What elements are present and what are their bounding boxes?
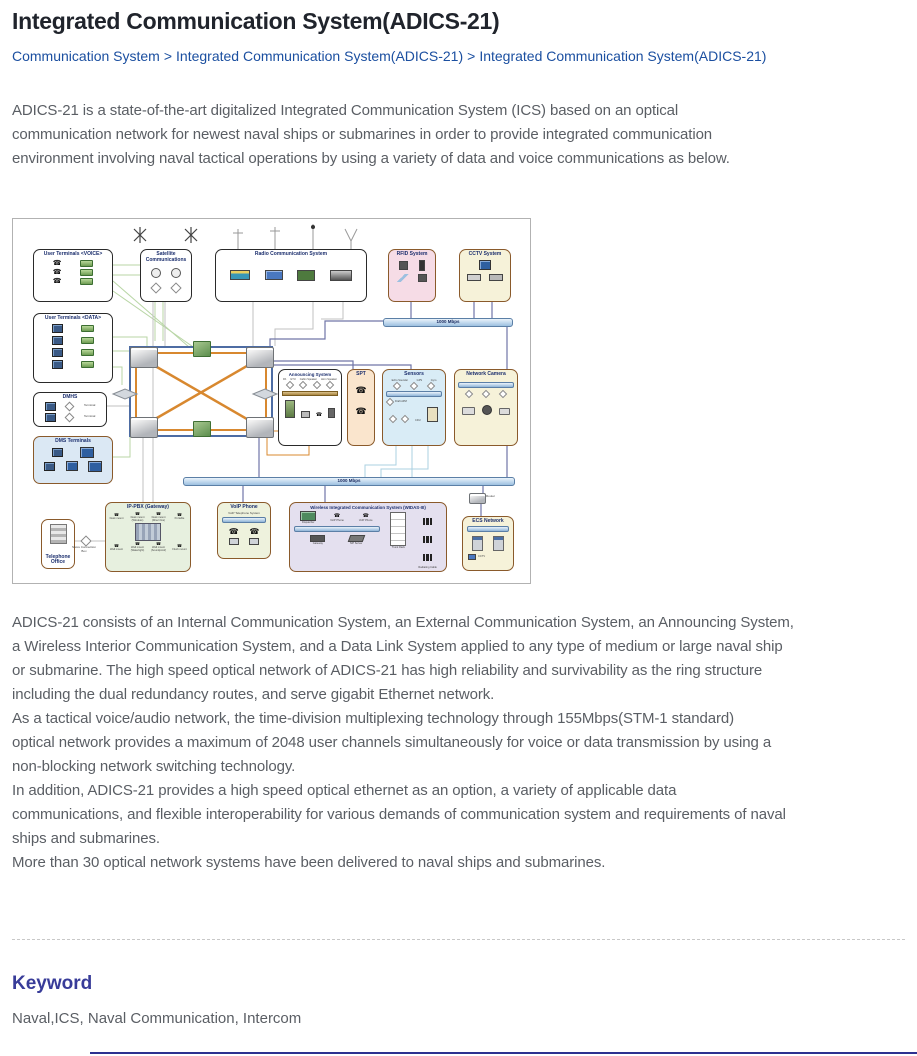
widas-bus-icon [294,526,380,532]
sensor-node-icon [388,415,396,423]
display-icon [80,447,94,458]
phone-icon: ☎ [53,260,62,267]
widas-item: ☎VoIP Phone [355,514,376,522]
walkie-talkie-group-icon [422,548,433,566]
ecs-console-icon [493,536,504,551]
body-line: ships and submarines. [12,827,905,851]
phone-base-icon [249,538,259,545]
widas-item-label: Gateway [313,542,323,545]
dispatcher-icon [300,511,316,521]
breadcrumb: Communication System>Integrated Communic… [12,48,905,64]
breadcrumb-separator: > [164,48,172,64]
bottom-section-rule [90,1052,917,1054]
body-line: a Wireless Interior Communication System… [12,635,905,659]
widas-item: Gateway [307,535,328,545]
box-ecs-network: ECS Network CCTV [462,516,514,571]
optical-switch-icon [246,347,274,368]
breadcrumb-item-1[interactable]: Communication System [12,48,160,64]
box-radio-communication: Radio Communication System [215,249,367,302]
voip-bus-icon [222,517,266,523]
sensor-label: Echo Sounder [392,379,408,382]
box-user-terminals-voice: User Terminals <VOICE> ☎ ☎ ☎ [33,249,113,302]
widas-item-label: VoIP Phone [359,519,373,522]
amplifier-icon [301,411,310,418]
gigabit-bus-top: 1000 Mbps [383,318,513,327]
optical-switch-icon [130,347,158,368]
pbx-phone-label: Wall mount (Watertight) [127,546,148,552]
computer-icon [52,360,63,369]
announcing-item-label: PA [283,378,286,381]
pbx-phone-label: Desk mount [110,517,124,520]
camera-bus-icon [458,382,514,388]
sip-server-icon [347,535,365,542]
box-announcing-system: Announcing System PA GTU Cabin Speaker H… [278,369,342,446]
stairs-icon [397,274,409,282]
satellite-dish-icon [171,268,181,278]
box-title: SPT [348,370,374,378]
camera-node-icon [499,390,507,398]
adics-architecture-diagram: 1000 Mbps 1000 Mbps Router Shore Connect… [12,218,531,584]
pbx-phone-label: Flush mount [172,548,186,551]
terminal-module-icon [81,349,94,356]
breadcrumb-item-3[interactable]: Integrated Communication System(ADICS-21… [479,48,766,64]
box-title: CCTV System [460,250,510,258]
router-icon [469,493,486,504]
widas-item-label: Dispatcher [302,521,314,524]
phone-base-icon [229,538,239,545]
pbx-phone-item: ☎Portable [169,513,190,520]
cctv-camera-icon [499,408,510,415]
computer-icon [45,413,56,422]
pbx-phone-label: Portable [175,517,185,520]
sensor-node-icon [401,415,409,423]
router-label: Router [486,495,495,499]
widas-item: Dispatcher [298,511,319,524]
intro-line: environment involving naval tactical ope… [12,147,905,171]
body-line: including the dual redundancy routes, an… [12,683,905,707]
box-title: Announcing System [279,370,341,377]
box-title: User Terminals <VOICE> [34,250,112,258]
dome-camera-icon [482,405,492,415]
rfid-reader-icon [418,274,427,282]
sensor-label: CDU [415,419,421,422]
box-title: VoIP Phone [218,503,270,511]
cctv-module-icon [468,554,476,560]
pbx-phone-label: Wall mount (Soundproof) [148,546,169,552]
sensor-label: Draft APM [395,400,407,403]
widas-item: Radiating Cable [413,512,443,569]
terminal-module-icon [80,260,93,267]
computer-icon [52,336,63,345]
terminal-module-icon [80,278,93,285]
trunk-rack-icon [390,512,406,546]
pbx-phone-label: Wall mount [110,548,123,551]
radio-set-icon [230,270,250,280]
box-title: Radio Communication System [216,250,366,258]
radio-set-icon [330,270,352,281]
body-line: ADICS-21 consists of an Internal Communi… [12,611,905,635]
gigabit-bus-bottom: 1000 Mbps [183,477,515,486]
box-widas: Wireless Integrated Communication System… [289,502,447,572]
satcom-antenna-icon [134,227,197,243]
box-user-terminals-data: User Terminals <DATA> [33,313,113,383]
intro-line: ADICS-21 is a state-of-the-art digitaliz… [12,99,905,123]
widas-item-label: VoIP Phone [330,519,344,522]
monitor-icon [479,260,491,270]
computer-icon [52,324,63,333]
phone-icon: ☎ [229,528,239,536]
widas-item-label: SIP Server [350,542,363,545]
radio-set-icon [297,270,315,281]
terminal-module-icon [81,325,94,332]
keyword-list: Naval,ICS, Naval Communication, Intercom [12,1010,905,1027]
body-line: non-blocking network switching technolog… [12,755,905,779]
terminal-module-icon [80,269,93,276]
widas-item: Trunk Rack [387,512,409,549]
pa-rack-icon [285,400,295,418]
announcing-item-label: GTU [290,378,295,381]
pbx-phone-item: ☎Desk mount (Direct line) [148,512,169,522]
announcing-bus-icon [282,391,338,396]
pbx-phone-item: ☎Desk mount [106,513,127,520]
shore-connection-label: Shore Connection Box [69,546,99,553]
sensor-bus-icon [386,391,442,397]
intro-line: communication network for newest naval s… [12,123,905,147]
box-title: Wireless Integrated Communication System… [290,503,446,510]
widas-item-label: Trunk Rack [392,546,405,549]
sensor-label: GPS [417,379,422,382]
breadcrumb-item-2[interactable]: Integrated Communication System(ADICS-21… [176,48,463,64]
terminal-label: Terminal [84,404,95,408]
widas-item: SIP Server [346,535,367,545]
terminal-node-icon [170,282,181,293]
box-telephone-office: Telephone Office [41,519,75,569]
terminal-module-icon [81,361,94,368]
computer-icon [44,462,55,471]
terminal-node-icon [65,412,75,422]
speaker-node-icon [326,381,334,389]
optical-switch-icon [246,417,274,438]
pbx-phone-item: ☎Flush mount [169,544,190,551]
cctv-small-label: CCTV [478,555,485,558]
computer-icon [52,348,63,357]
voip-system-label: VoIP Telephone System [218,512,270,516]
terminal-label: Terminal [84,415,95,419]
pbx-phone-item: ☎Wall mount [106,544,127,551]
page-title: Integrated Communication System(ADICS-21… [12,8,905,35]
box-title: DMHS [34,393,106,401]
sensor-node-icon [386,398,394,406]
server-icon [489,274,503,281]
satellite-dish-icon [151,268,161,278]
sensor-node-icon [393,382,401,390]
intro-paragraph: ADICS-21 is a state-of-the-art digitaliz… [12,99,905,171]
body-line: or submarine. The high speed optical net… [12,659,905,683]
speaker-node-icon [285,381,293,389]
box-title: Satellite Communications [141,250,191,264]
body-line: As a tactical voice/audio network, the t… [12,707,905,731]
body-line: communications, and flexible interoperab… [12,803,905,827]
pbx-phone-item: ☎Wall mount (Watertight) [127,542,148,552]
ecs-bus-icon [467,526,509,532]
box-cctv-system: CCTV System [459,249,511,302]
cdu-cabinet-icon [427,407,438,422]
computer-icon [52,448,63,457]
sensor-node-icon [427,382,435,390]
box-dmhs: DMHS Terminal Terminal [33,392,107,427]
rfid-reader-icon [399,261,408,270]
description-paragraphs: ADICS-21 consists of an Internal Communi… [12,611,905,875]
pbx-phone-item: ☎Wall mount (Soundproof) [148,542,169,552]
network-node-icon [193,341,211,357]
camera-node-icon [482,390,490,398]
sensor-node-icon [410,382,418,390]
display-icon [66,461,78,471]
body-line: In addition, ADICS-21 provides a high sp… [12,779,905,803]
box-sensors: Sensors Echo Sounder GPS Gyro Draft APM … [382,369,446,446]
pbx-rack-icon [135,523,161,541]
phone-icon: ☎ [316,413,322,418]
display-icon [88,461,102,472]
phone-icon: ☎ [249,528,259,536]
phone-icon: ☎ [355,407,366,416]
box-title: User Terminals <DATA> [34,314,112,322]
box-satellite-communications: Satellite Communications [140,249,192,302]
recorder-icon [467,274,481,281]
terminal-node-icon [151,282,162,293]
server-stack-icon [50,524,67,544]
optical-switch-icon [130,417,158,438]
computer-icon [45,402,56,411]
terminal-node-icon [65,401,75,411]
phone-icon: ☎ [53,278,62,285]
radio-set-icon [265,270,283,280]
speaker-icon [328,408,335,418]
speaker-node-icon [313,381,321,389]
box-title: Telephone Office [42,553,74,569]
breadcrumb-separator: > [467,48,475,64]
box-voip-phone: VoIP Phone VoIP Telephone System ☎ ☎ [217,502,271,559]
camera-node-icon [465,390,473,398]
pbx-phone-label: Desk mount (Direct line) [148,516,169,522]
box-title: Sensors [383,370,445,378]
terminal-module-icon [81,337,94,344]
pbx-phone-label: Desk mount (Wireless) [127,516,148,522]
box-title: DMS Terminals [34,437,112,445]
box-title: ECS Network [463,517,513,525]
cctv-camera-icon [462,407,475,415]
body-line: More than 30 optical network systems hav… [12,851,905,875]
box-title: IP-PBX (Gateway) [106,503,190,511]
box-title: Network Camera [455,370,517,378]
rfid-tag-icon [419,260,425,271]
widas-item-label: Radiating Cable [418,566,436,569]
pbx-phone-item: ☎Desk mount (Wireless) [127,512,148,522]
ecs-console-icon [472,536,483,551]
walkie-talkie-group-icon [422,530,433,548]
network-node-icon [193,421,211,437]
walkie-talkie-group-icon [422,512,433,530]
widas-item: ☎VoIP Phone [327,514,348,522]
radio-mast-icon [233,224,357,249]
box-rfid-system: RFID System [388,249,436,302]
box-title: RFID System [389,250,435,258]
dashed-divider [12,939,905,940]
keyword-heading: Keyword [12,973,905,995]
phone-icon: ☎ [53,269,62,276]
phone-icon: ☎ [355,386,366,395]
box-spt: SPT ☎ ☎ [347,369,375,446]
box-ip-pbx: IP-PBX (Gateway) ☎Desk mount ☎Desk mount… [105,502,191,572]
speaker-node-icon [299,381,307,389]
box-network-camera: Network Camera [454,369,518,446]
body-line: optical network provides a maximum of 20… [12,731,905,755]
box-dms-terminals: DMS Terminals [33,436,113,484]
